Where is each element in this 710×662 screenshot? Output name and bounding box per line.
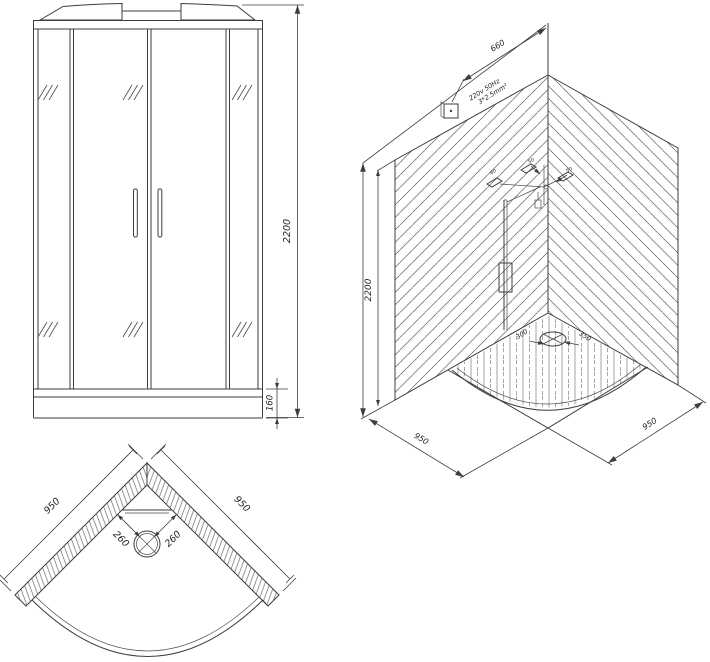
technical-drawing-canvas: 2200 160 300 350	[0, 0, 710, 662]
front-height-dim-label: 2200	[282, 219, 293, 243]
plan-wall-right-label: 950	[231, 494, 252, 515]
plan-view: 260 260 950 950	[0, 444, 296, 657]
iso-view: 300 350 60 50 50	[361, 23, 706, 478]
iso-electric-box	[441, 102, 458, 118]
plan-dim-drain-right: 260	[154, 515, 184, 550]
plan-wall-left-label: 950	[42, 496, 63, 517]
front-tray-dim-label: 160	[266, 395, 276, 411]
plan-drain-left-label: 260	[110, 529, 131, 550]
front-tray	[34, 389, 263, 418]
iso-base-right-label: 950	[641, 416, 659, 432]
iso-height-dim-label: 2200	[364, 278, 374, 301]
iso-dim-base-left: 950	[369, 419, 548, 478]
plan-corner-chord	[122, 510, 172, 513]
plan-front-arc	[26, 597, 268, 657]
plan-dim-drain-left: 260	[110, 515, 140, 550]
iso-base-left-label: 950	[412, 431, 430, 447]
plan-drain-right-label: 260	[163, 529, 184, 550]
plan-right-wall	[147, 463, 279, 606]
front-roof	[40, 4, 255, 21]
shower-drawing: 2200 160 300 350	[0, 0, 710, 662]
plan-dim-wall-right: 950	[151, 444, 296, 591]
iso-cable-dim-label: 660	[489, 38, 507, 54]
front-view: 2200 160	[34, 4, 305, 430]
front-frame	[34, 21, 263, 419]
plan-dim-wall-left: 950	[0, 444, 143, 591]
front-dim-height: 2200	[242, 5, 304, 418]
plan-left-wall	[15, 463, 147, 606]
front-dim-tray: 160	[266, 378, 289, 429]
